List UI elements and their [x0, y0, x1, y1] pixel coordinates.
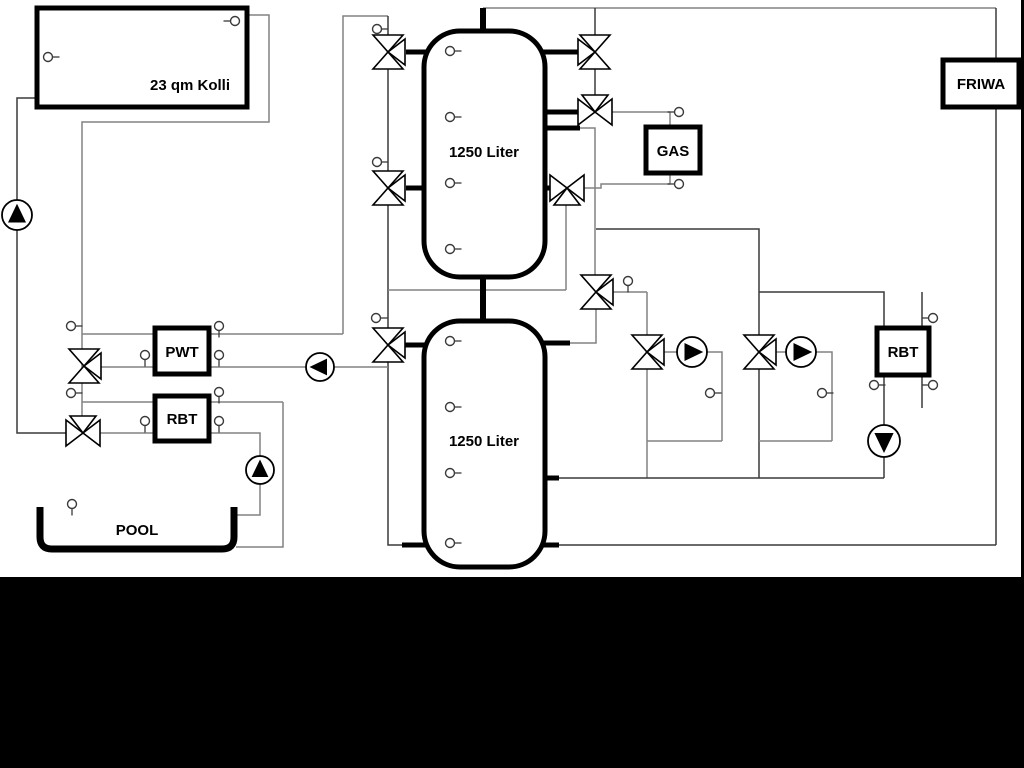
sensor-gas-return-icon [675, 180, 684, 189]
sensor-rbt-right-return-icon [870, 381, 879, 390]
sensor-pwt-top-left-icon [67, 322, 76, 331]
sensor-manifold-mid-icon [373, 158, 382, 167]
sensor-rbt-right-top-icon [215, 388, 224, 397]
sensor-rbt-sec-bottom-icon [929, 381, 938, 390]
sensor-tank1-3-icon [446, 179, 455, 188]
sensor-tank2-2-icon [446, 403, 455, 412]
sensor-tank2-3-icon [446, 469, 455, 478]
sensor-rbt-sec-top-icon [929, 314, 938, 323]
bottom-black-band [0, 577, 1024, 768]
sensor-collector-flow-icon [231, 17, 240, 26]
label-pool: POOL [116, 522, 159, 539]
sensor-pwt-left-icon [141, 351, 150, 360]
sensor-rbt-top-left-icon [67, 389, 76, 398]
sensor-rbt-right-icon [215, 417, 224, 426]
label-rbt-left: RBT [167, 411, 198, 428]
label-tank-lower: 1250 Liter [449, 433, 519, 450]
sensor-collector-plate-icon [44, 53, 53, 62]
sensor-pwt-right-top-icon [215, 322, 224, 331]
sensor-pool-icon [68, 500, 77, 509]
label-tank-upper: 1250 Liter [449, 144, 519, 161]
sensor-circuit-1-icon [706, 389, 715, 398]
label-friwa: FRIWA [957, 76, 1005, 93]
sensor-manifold-low-icon [372, 314, 381, 323]
sensor-pwt-right-icon [215, 351, 224, 360]
sensor-circuit-2-icon [818, 389, 827, 398]
sensor-heating-flow-icon [624, 277, 633, 286]
sensor-manifold-top-icon [373, 25, 382, 34]
sensor-tank2-4-icon [446, 539, 455, 548]
sensor-tank1-1-icon [446, 47, 455, 56]
label-gas: GAS [657, 143, 690, 160]
hydraulic-schematic: 23 qm Kolli1250 Liter1250 LiterPWTRBTGAS… [0, 0, 1024, 768]
sensor-tank1-4-icon [446, 245, 455, 254]
sensor-gas-flow-icon [675, 108, 684, 117]
sensor-tank2-1-icon [446, 337, 455, 346]
label-collector: 23 qm Kolli [150, 77, 230, 94]
sensor-rbt-left-icon [141, 417, 150, 426]
label-pwt: PWT [165, 344, 198, 361]
label-rbt-right: RBT [888, 344, 919, 361]
sensor-tank1-2-icon [446, 113, 455, 122]
diagram-canvas: 23 qm Kolli1250 Liter1250 LiterPWTRBTGAS… [0, 0, 1024, 768]
